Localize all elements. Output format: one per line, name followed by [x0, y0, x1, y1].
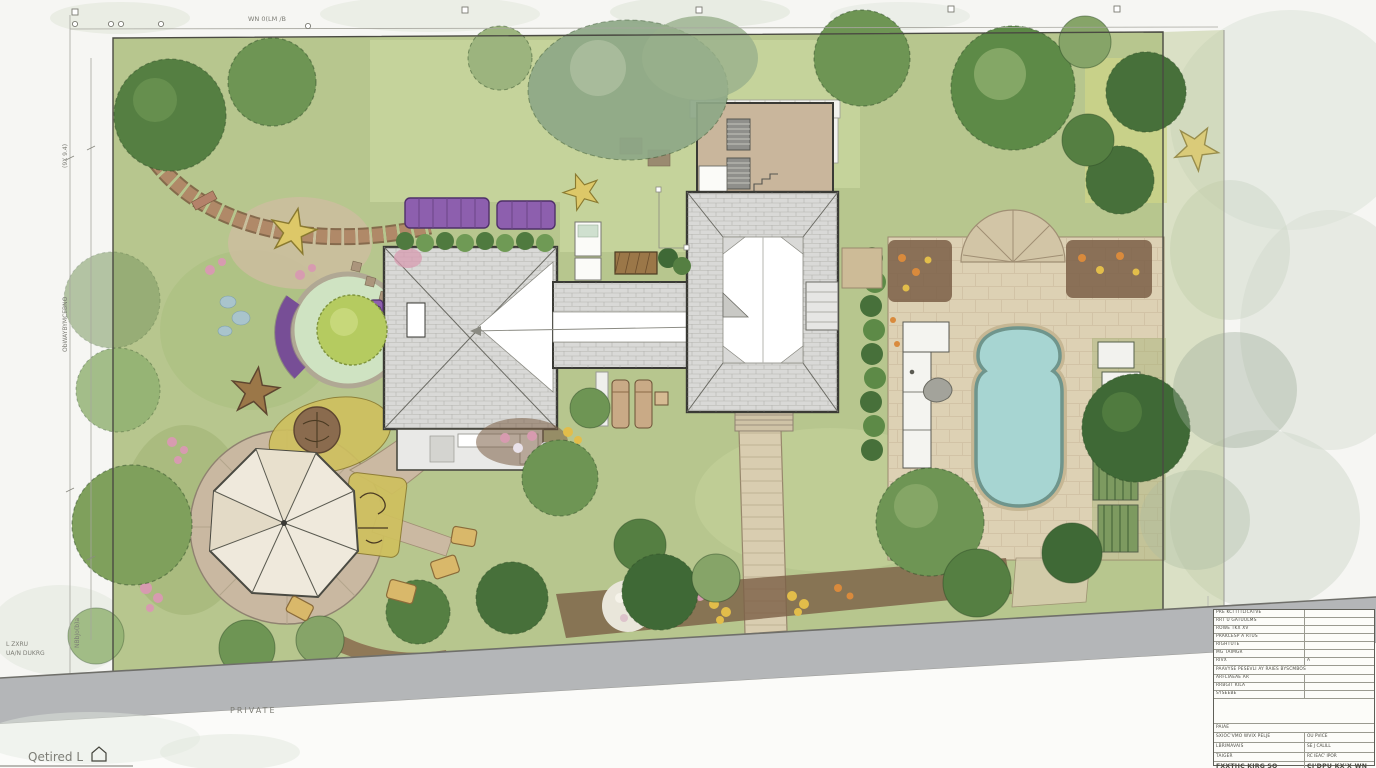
left-dim-upper: (9X 9.4): [62, 144, 69, 168]
title-block-row: LBRIMAVAISSE J CALILL: [1214, 743, 1374, 753]
swimming-pool: [976, 328, 1062, 506]
side-porch: [806, 282, 838, 330]
title-block-row: PRE KCI ITTLICATVE: [1214, 610, 1374, 618]
left-note-1: L ZXRU: [6, 641, 28, 648]
tree: [1062, 114, 1114, 166]
shrub: [570, 388, 610, 428]
left-wing: [384, 247, 557, 429]
title-block-row: RIVXA: [1214, 658, 1374, 666]
bay-window: [407, 303, 425, 337]
road-label: PRIVATE: [230, 706, 277, 715]
title-block-row: RRBGIT KILA: [1214, 683, 1374, 691]
tree: [622, 554, 698, 630]
title-block-row: RRT U GATUULMS: [1214, 618, 1374, 626]
landscape-site-plan: WN 0(LM /B (9X 9.4) ObWAYBYMCEBNO NBbJo(…: [0, 0, 1376, 768]
tree: [1106, 52, 1186, 132]
tree: [296, 616, 344, 664]
purple-sofa: [497, 201, 555, 229]
tree: [76, 348, 160, 432]
tree-sketch: [64, 252, 160, 348]
boulder: [923, 378, 952, 402]
lawn-chair: [451, 526, 478, 547]
tree-faded: [1140, 470, 1250, 570]
tree: [943, 549, 1011, 617]
pond-stone: [220, 296, 236, 308]
tree: [522, 440, 598, 516]
title-block: PRE KCI ITTLICATVE RRT U GATUULMS ROWE T…: [1213, 609, 1375, 766]
tree: [72, 465, 192, 585]
title-block-row: PAAVYSE PESEVLI AY RAIES BYSCMBOS: [1214, 666, 1374, 675]
tree-faded: [1173, 332, 1297, 448]
left-dim-middle: ObWAYBYMCEBNO: [62, 296, 69, 352]
tree: [228, 38, 316, 126]
cabinet: [575, 258, 601, 280]
right-wing: [687, 192, 838, 412]
rug: [430, 436, 454, 462]
title-block-spacer: [1214, 699, 1374, 724]
title-block-project-row: FXXTHC KIRG SQCI'DPU KX'X WN: [1214, 762, 1374, 768]
east-landing: [842, 248, 882, 288]
tree-canopy-sage: [642, 16, 758, 100]
bottom-left-label: Qetired L: [28, 750, 83, 764]
left-note-2: UA/N DUKRG: [6, 650, 45, 657]
title-block-row: SYSEEBE: [1214, 691, 1374, 699]
tree: [814, 10, 910, 106]
title-block-row: TAIGERRC IEAC' IPOR: [1214, 753, 1374, 762]
left-dim-lower: NBbJo(b)a: [74, 618, 81, 648]
blossom-overhang: [394, 248, 422, 268]
top-annotation: WN 0(LM /B: [248, 15, 286, 23]
tree: [692, 554, 740, 602]
title-block-row: RIGHTUTE: [1214, 642, 1374, 650]
title-block-row: PAIAE: [1214, 724, 1374, 733]
tree: [1059, 16, 1111, 68]
title-block-row: PRAKCESP A RTUS: [1214, 634, 1374, 642]
tree: [476, 562, 548, 634]
title-block-row: SXIOC'VMO WVIX PELJEOU PVICE: [1214, 733, 1374, 743]
tree: [1042, 523, 1102, 583]
title-block-row: ROWE TKX XV: [1214, 626, 1374, 634]
site-plan-sheet: WN 0(LM /B (9X 9.4) ObWAYBYMCEBNO NBbJo(…: [0, 0, 1376, 768]
title-block-row: MG TAIMGR: [1214, 650, 1374, 658]
title-block-row: ARFLIAEAE AR: [1214, 675, 1374, 683]
